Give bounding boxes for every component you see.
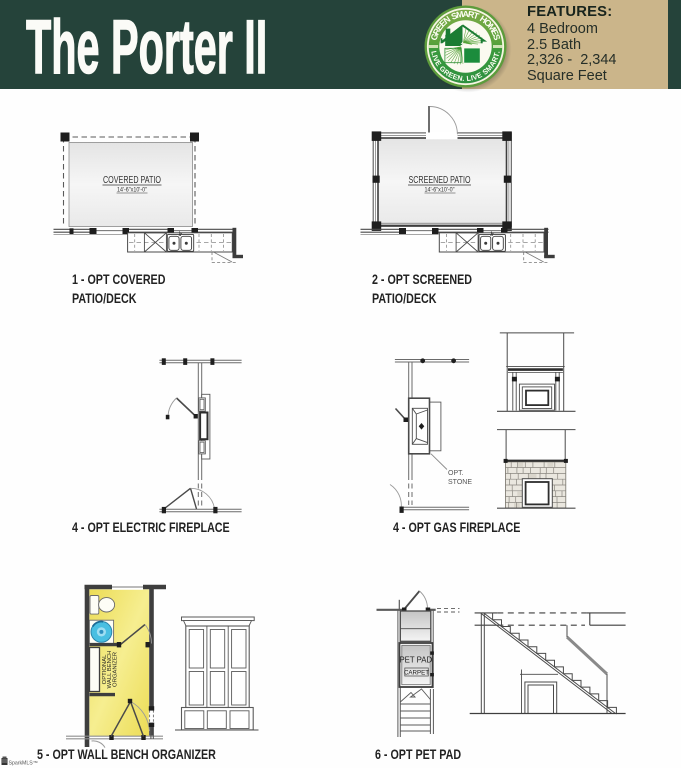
svg-text:LIVE GREEN. LIVE SMART.: LIVE GREEN. LIVE SMART. [420,1,467,3]
svg-text:SCREENED PATIO: SCREENED PATIO [409,175,471,186]
svg-text:ORGANIZER: ORGANIZER [113,652,119,687]
svg-text:STONE: STONE [448,479,472,486]
svg-text:14'-6"x10'-0": 14'-6"x10'-0" [425,187,455,194]
svg-text:OPT.: OPT. [448,470,464,477]
svg-text:COVERED PATIO: COVERED PATIO [103,175,161,186]
svg-text:CARPET: CARPET [404,670,429,677]
svg-text:14'-6"x10'-0": 14'-6"x10'-0" [117,187,147,194]
svg-text:SparkMLS™: SparkMLS™ [9,761,38,767]
svg-text:PET PAD: PET PAD [399,656,432,665]
